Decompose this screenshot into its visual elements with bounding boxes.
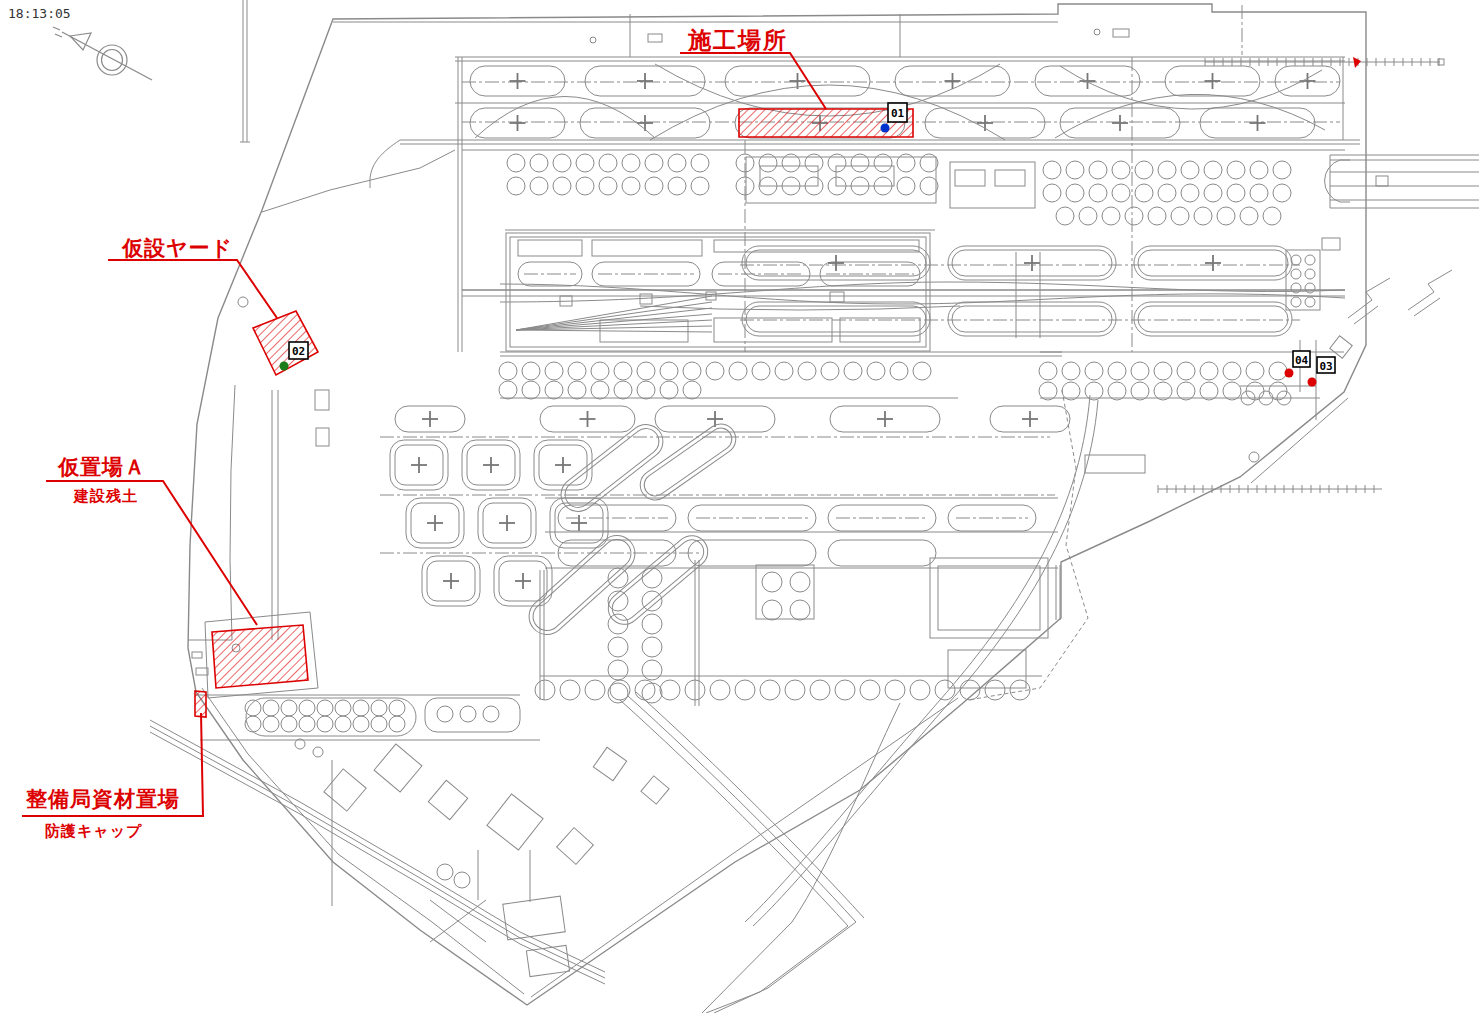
dot-04-red (1285, 369, 1294, 378)
site-plan-base-drawing (150, 0, 1479, 1013)
timestamp: 18:13:05 (8, 6, 71, 21)
marker-03[interactable]: 03 (1317, 357, 1335, 373)
dot-01-blue (881, 124, 890, 133)
north-arrow-icon (53, 27, 152, 80)
cad-drawing-stage: 18:13:05 施工場所 01 仮設ヤード 02 仮置場Ａ 建設残土 整備局資… (0, 0, 1479, 1013)
dot-03-red (1308, 378, 1317, 387)
marker-02[interactable]: 02 (289, 342, 308, 359)
dot-02-green (280, 362, 289, 371)
sublabel-staging-a: 建設残土 (72, 487, 138, 504)
svg-text:03: 03 (1319, 360, 1332, 373)
leader-temporary-yard (108, 260, 277, 318)
label-staging-a: 仮置場Ａ (57, 455, 146, 478)
label-temporary-yard: 仮設ヤード (121, 236, 233, 259)
hatch-area-staging-a[interactable] (212, 625, 308, 688)
svg-text:01: 01 (891, 107, 905, 120)
label-material-storage: 整備局資材置場 (25, 787, 180, 811)
marker-01[interactable]: 01 (888, 103, 907, 122)
svg-text:02: 02 (292, 345, 305, 358)
sublabel-material-storage: 防護キャップ (45, 822, 142, 839)
marker-04[interactable]: 04 (1293, 351, 1310, 367)
svg-text:04: 04 (1295, 354, 1309, 367)
hatch-area-construction-site[interactable] (739, 109, 913, 137)
label-construction-site: 施工場所 (687, 27, 788, 53)
